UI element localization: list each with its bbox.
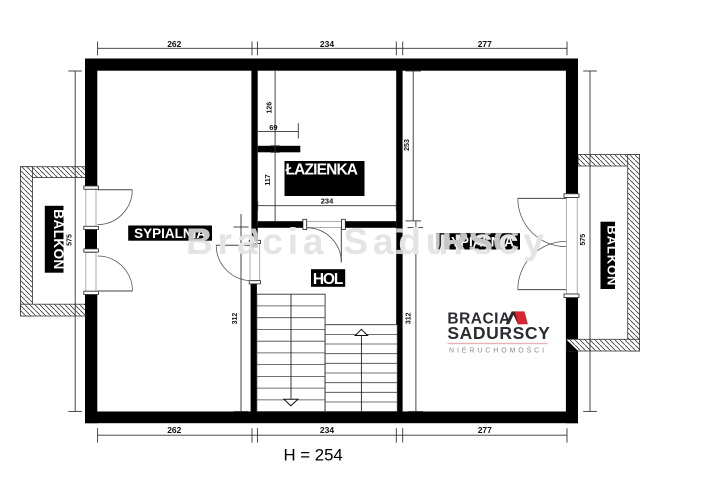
svg-text:575: 575 xyxy=(580,234,587,246)
svg-text:312: 312 xyxy=(406,312,413,324)
svg-text:BALKON: BALKON xyxy=(51,209,66,269)
svg-text:H = 254: H = 254 xyxy=(284,446,343,465)
svg-text:ŁAZIENKA: ŁAZIENKA xyxy=(286,162,359,179)
svg-text:253: 253 xyxy=(404,139,411,151)
svg-text:262: 262 xyxy=(167,39,181,49)
svg-text:262: 262 xyxy=(167,425,181,435)
svg-text:69: 69 xyxy=(269,123,277,132)
svg-text:312: 312 xyxy=(232,313,239,325)
svg-text:NIERUCHOMOŚCI: NIERUCHOMOŚCI xyxy=(449,345,547,354)
svg-text:234: 234 xyxy=(321,196,334,205)
svg-text:575: 575 xyxy=(67,234,74,246)
svg-text:BALKON: BALKON xyxy=(605,225,620,285)
svg-text:277: 277 xyxy=(478,39,492,49)
svg-text:117: 117 xyxy=(265,174,272,185)
svg-text:SADURSCY: SADURSCY xyxy=(447,323,550,343)
svg-text:277: 277 xyxy=(478,425,492,435)
svg-text:HOL: HOL xyxy=(313,271,344,288)
svg-text:126: 126 xyxy=(266,102,273,114)
svg-text:234: 234 xyxy=(320,39,334,49)
svg-text:234: 234 xyxy=(320,425,334,435)
